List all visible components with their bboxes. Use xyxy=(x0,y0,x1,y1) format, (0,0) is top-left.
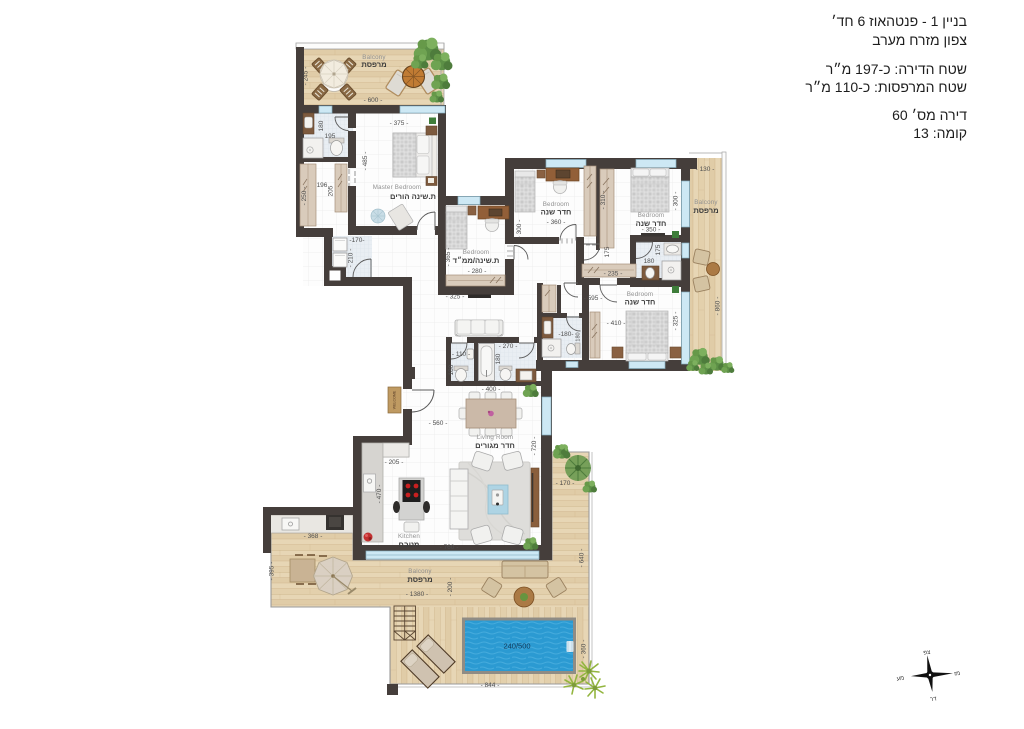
svg-text:195: 195 xyxy=(325,133,336,140)
svg-text:- 400 -: - 400 - xyxy=(482,386,501,393)
svg-text:- 280 -: - 280 - xyxy=(468,268,487,275)
svg-text:בניין 1 - פנטהאוז 6 חד׳: בניין 1 - פנטהאוז 6 חד׳ xyxy=(831,13,967,29)
svg-text:- 760 -: - 760 - xyxy=(440,544,459,551)
svg-text:צפון מזרח מערב: צפון מזרח מערב xyxy=(872,32,967,48)
svg-text:מז: מז xyxy=(954,671,961,678)
svg-text:- 350 -: - 350 - xyxy=(642,227,661,234)
svg-text:מרפסת: מרפסת xyxy=(361,60,386,69)
svg-text:- 600 -: - 600 - xyxy=(364,97,383,104)
svg-text:Living Room: Living Room xyxy=(477,434,514,441)
svg-text:Bedroom: Bedroom xyxy=(463,249,490,256)
svg-text:180: 180 xyxy=(644,258,655,265)
svg-text:- 300 -: - 300 - xyxy=(673,192,680,211)
svg-text:- 368 -: - 368 - xyxy=(304,533,323,540)
svg-text:WELCOME: WELCOME xyxy=(393,390,397,409)
svg-text:Balcony: Balcony xyxy=(408,568,432,575)
svg-text:קומה: 13: קומה: 13 xyxy=(913,125,967,141)
svg-text:- 470 -: - 470 - xyxy=(376,485,383,504)
svg-text:205: 205 xyxy=(328,185,335,196)
svg-text:- 205 -: - 205 - xyxy=(385,459,404,466)
svg-text:מרפסת: מרפסת xyxy=(407,575,432,584)
svg-text:ת.שינה הורים: ת.שינה הורים xyxy=(390,192,436,201)
svg-text:- 110 -: - 110 - xyxy=(452,351,470,358)
svg-text:175: 175 xyxy=(655,244,662,255)
svg-text:- 395 -: - 395 - xyxy=(269,562,276,581)
svg-text:- 640 -: - 640 - xyxy=(579,549,586,568)
svg-text:Master Bedroom: Master Bedroom xyxy=(373,184,422,191)
svg-text:180: 180 xyxy=(318,120,325,131)
svg-text:- 245 -: - 245 - xyxy=(303,67,310,86)
svg-text:- 325 -: - 325 - xyxy=(446,294,465,301)
svg-text:- 860 -: - 860 - xyxy=(715,297,722,316)
svg-text:- 235 -: - 235 - xyxy=(604,271,623,278)
svg-text:- 360 -: - 360 - xyxy=(547,219,566,226)
svg-text:Bedroom: Bedroom xyxy=(638,212,665,219)
svg-text:- 375 -: - 375 - xyxy=(390,120,409,127)
svg-text:- 365 -: - 365 - xyxy=(445,248,452,267)
svg-text:- 720 -: - 720 - xyxy=(531,437,538,456)
svg-text:196: 196 xyxy=(317,182,328,189)
svg-text:שטח הדירה: כ-197 מ״ר: שטח הדירה: כ-197 מ״ר xyxy=(826,61,967,77)
svg-text:180: 180 xyxy=(576,332,582,341)
svg-text:180: 180 xyxy=(495,353,502,364)
svg-text:- 310 -: - 310 - xyxy=(600,191,607,210)
svg-text:- 485 -: - 485 - xyxy=(362,152,369,171)
svg-text:- 200 -: - 200 - xyxy=(447,578,454,597)
svg-text:240/500: 240/500 xyxy=(503,642,530,651)
svg-text:- 170 -: - 170 - xyxy=(556,480,575,487)
svg-text:מטבח: מטבח xyxy=(399,540,420,549)
svg-text:180: 180 xyxy=(448,364,455,375)
svg-text:- 1380 -: - 1380 - xyxy=(406,591,428,598)
svg-text:- 270 -: - 270 - xyxy=(499,343,518,350)
svg-text:ת.שינה‏/‏ממ״ד: ת.שינה‏/‏ממ״ד xyxy=(453,256,500,265)
svg-text:מרפסת: מרפסת xyxy=(693,206,718,215)
svg-text:- 250 -: - 250 - xyxy=(301,187,308,206)
svg-text:חדר מגורים: חדר מגורים xyxy=(475,441,515,450)
svg-text:- 300 -: - 300 - xyxy=(516,220,523,239)
svg-text:- 360 -: - 360 - xyxy=(581,640,588,659)
svg-text:חדר שנה: חדר שנה xyxy=(541,208,572,217)
svg-text:- 595 -: - 595 - xyxy=(584,295,603,302)
svg-text:-170-: -170- xyxy=(349,237,364,244)
svg-text:-180-: -180- xyxy=(558,331,573,338)
svg-text:- 325 -: - 325 - xyxy=(673,312,680,331)
svg-text:דירה מס׳ 60: דירה מס׳ 60 xyxy=(892,107,967,123)
svg-text:- 410 -: - 410 - xyxy=(607,320,626,327)
svg-text:מע: מע xyxy=(896,676,904,683)
svg-text:- 844 -: - 844 - xyxy=(481,682,500,689)
svg-text:175: 175 xyxy=(604,246,611,257)
svg-text:Balcony: Balcony xyxy=(694,199,718,206)
svg-text:שטח המרפסות: כ-110 מ״ר: שטח המרפסות: כ-110 מ״ר xyxy=(805,79,967,95)
svg-text:Kitchen: Kitchen xyxy=(398,533,420,540)
svg-text:- 560 -: - 560 - xyxy=(429,420,448,427)
svg-text:- 210 -: - 210 - xyxy=(348,249,355,268)
svg-text:חדר שנה: חדר שנה xyxy=(625,298,656,307)
svg-text:- 130 -: - 130 - xyxy=(696,166,715,173)
